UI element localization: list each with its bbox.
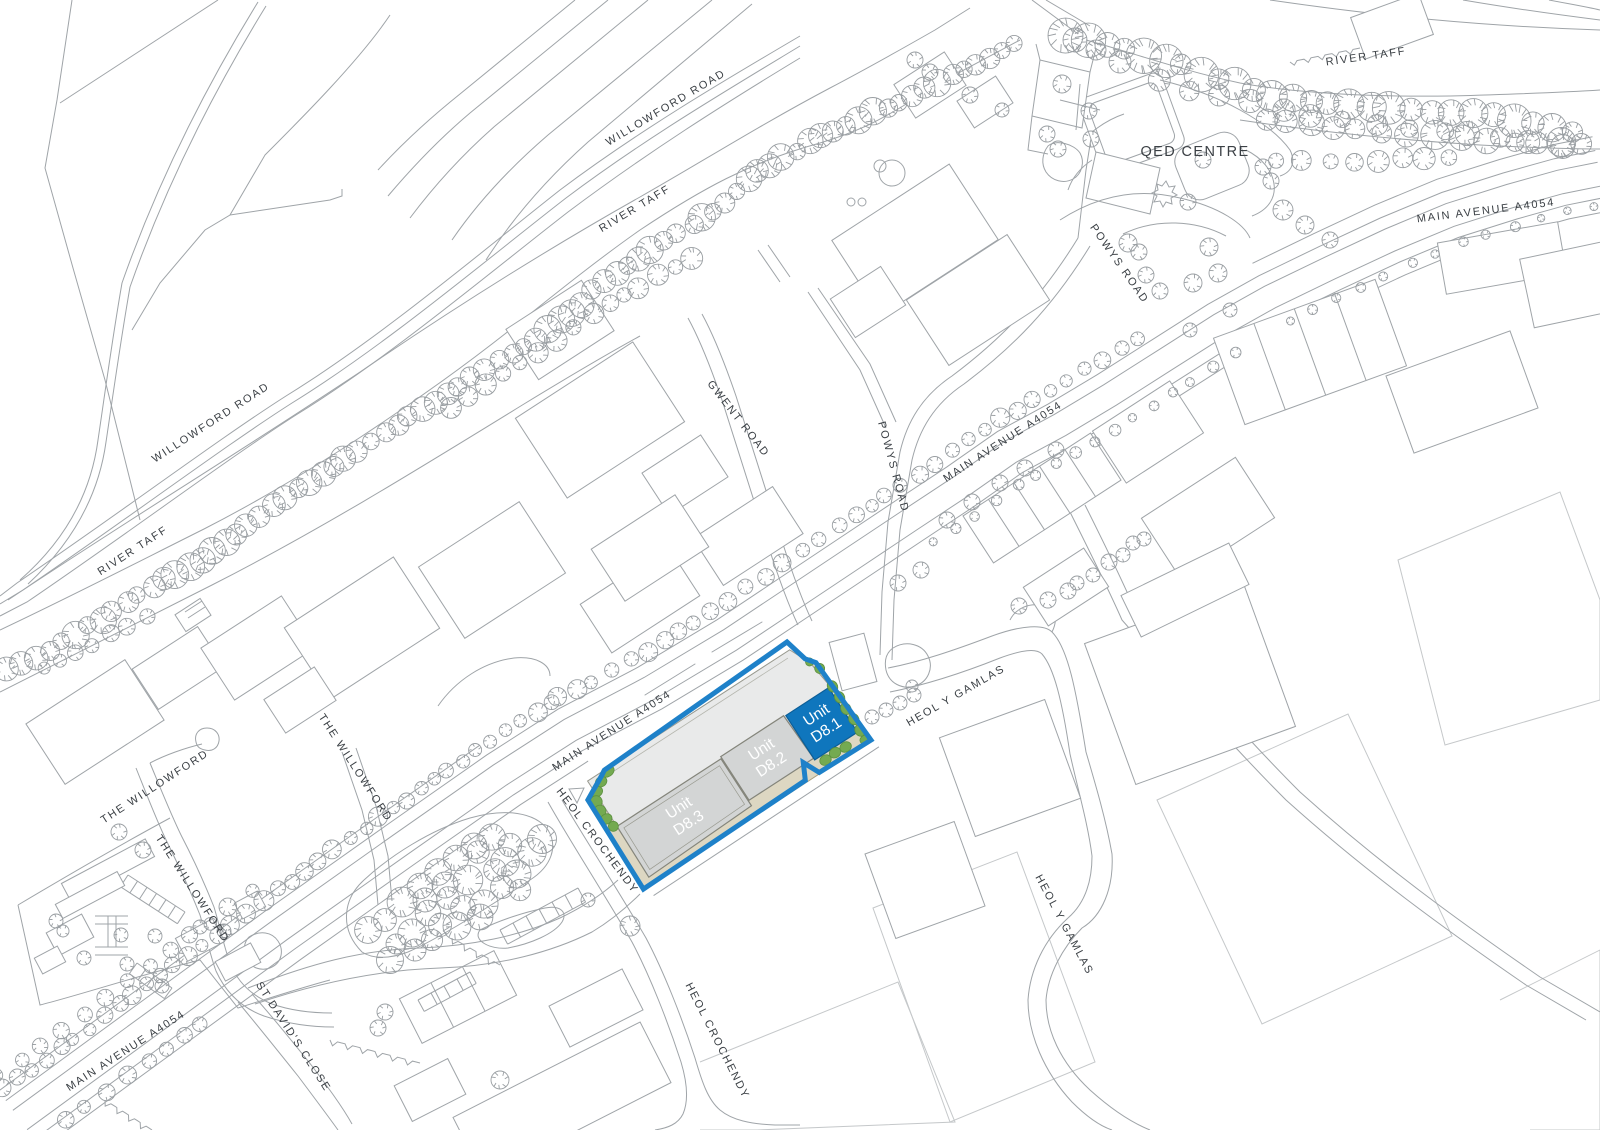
svg-text:QED CENTRE: QED CENTRE xyxy=(1140,144,1249,160)
